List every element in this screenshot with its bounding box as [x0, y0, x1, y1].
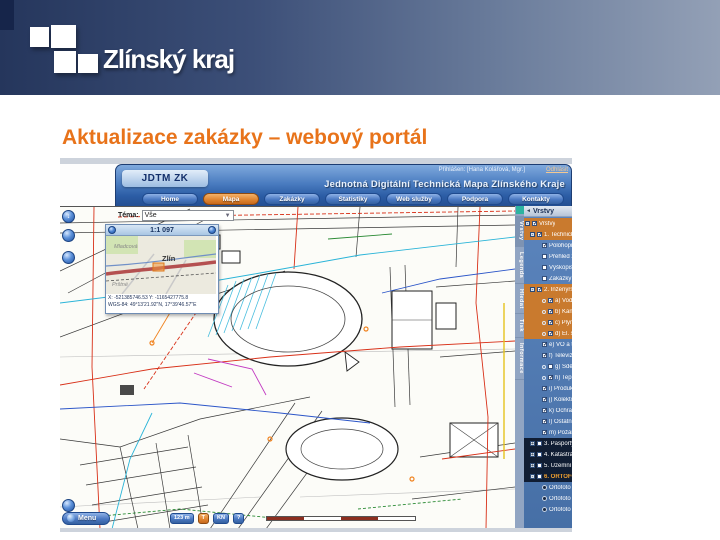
layer-label: 1. Technická mapa	[544, 232, 572, 238]
screenshot-bottom-strip	[60, 528, 572, 532]
panel-header: ◄ Vrstvy	[524, 206, 572, 217]
layer-tree-item[interactable]: ✓i) Produktovody	[524, 383, 572, 394]
expand-toggle-icon[interactable]: +	[530, 441, 535, 446]
layer-tree-item[interactable]: ✓e) VO a tech. služby	[524, 339, 572, 350]
layer-tree-item[interactable]: + 3. Pasporty obcí	[524, 438, 572, 449]
overview-info-button[interactable]	[108, 226, 116, 234]
logout-link[interactable]: Odhlásit	[546, 167, 568, 173]
layer-tree-item[interactable]: ✓m) Požární hydranty	[524, 427, 572, 438]
overview-header: 1:1 097	[106, 225, 218, 236]
layer-label: Ortofoto 2008 (WMS ZK)	[549, 485, 572, 491]
layer-checkbox[interactable]	[548, 364, 553, 369]
layer-checkbox[interactable]	[537, 452, 542, 457]
layer-label: 4. Katastrální mapa	[544, 452, 572, 458]
layer-checkbox[interactable]	[537, 463, 542, 468]
scale-bar	[266, 516, 416, 521]
portal-screenshot: JDTM ZK Přihlášen: [Hana Kolářová, Mgr.]…	[60, 158, 572, 532]
layer-checkbox[interactable]	[542, 254, 547, 259]
login-status: Přihlášen: [Hana Kolářová, Mgr.]	[439, 167, 525, 173]
layer-label: 2. Inženýrské sítě	[544, 287, 572, 293]
expand-toggle-icon[interactable]: -	[530, 287, 535, 292]
theme-value: Vše	[145, 212, 157, 219]
layer-tree-item[interactable]: - 6. ORTOFOTO	[524, 471, 572, 482]
layer-checkbox[interactable]: ✓	[542, 353, 547, 358]
layer-label: 3. Pasporty obcí	[544, 441, 572, 447]
panel-corner-icon	[516, 206, 524, 214]
coordinate-readout: X: -521385746.53 Y: -1165427775.8 WGS-84…	[106, 294, 218, 311]
coords-sjtsk: X: -521385746.53 Y: -1165427775.8	[108, 295, 216, 302]
layer-panel: VrstvyLegendaHledatTiskInformace ◄ Vrstv…	[515, 206, 572, 528]
panel-main: ◄ Vrstvy - ✓Vrstvy - ✓1. Technická mapa …	[524, 206, 572, 528]
layer-checkbox[interactable]	[537, 474, 542, 479]
layer-tree-item[interactable]: ✓d) El. silová vedení	[524, 328, 572, 339]
layer-label: Ortofoto 2014 (WMS ČÚZK)	[549, 507, 572, 513]
layer-checkbox[interactable]: ✓	[537, 287, 542, 292]
nav-button[interactable]: Zakázky	[264, 193, 320, 205]
menu-label: Menu	[78, 515, 96, 522]
help-button[interactable]: ?	[233, 513, 244, 524]
menu-button[interactable]: Menu	[62, 512, 110, 525]
layer-label: f) Televizní kabely	[549, 353, 572, 359]
minimap-label-city: Zlín	[162, 254, 176, 263]
map-bottom-toolbar: Menu 123 m T KN ?	[62, 511, 512, 525]
expand-toggle-icon[interactable]: -	[530, 232, 535, 237]
portal-header: JDTM ZK Přihlášen: [Hana Kolářová, Mgr.]…	[115, 164, 572, 206]
logo-text: Zlínský kraj	[103, 44, 234, 75]
slide-header-band: Zlínský kraj	[0, 0, 720, 95]
panel-tab[interactable]: Hledat	[515, 284, 524, 315]
layer-checkbox[interactable]: ✓	[542, 419, 547, 424]
menu-ball-icon	[67, 514, 75, 522]
layer-label: Ortofoto 2012 (WMS)	[549, 496, 572, 502]
layer-tree-item[interactable]: ✓Polohopis	[524, 240, 572, 251]
layer-radio[interactable]	[542, 485, 547, 490]
layer-label: Výškopis	[549, 265, 572, 271]
layer-tree-item[interactable]: Ortofoto 2008 (WMS ZK)	[524, 482, 572, 493]
overview-minimap[interactable]: Mladcová Prštné Zlín	[106, 236, 218, 294]
chevron-down-icon: ▼	[225, 213, 231, 219]
layer-label: Přehled zakázek	[549, 254, 572, 260]
subnode-icon[interactable]	[542, 332, 546, 336]
panel-tab[interactable]: Informace	[515, 338, 524, 380]
layer-checkbox[interactable]: ✓	[537, 232, 542, 237]
logo-square-icon	[51, 25, 76, 48]
layer-label: g) Sdělovací vedení	[555, 364, 572, 370]
panel-tab[interactable]: Vrstvy	[515, 216, 524, 247]
layer-checkbox[interactable]: ✓	[548, 298, 553, 303]
expand-toggle-icon[interactable]: -	[530, 474, 535, 479]
layer-tree: - ✓Vrstvy - ✓1. Technická mapa ✓Polohopi…	[524, 217, 572, 528]
minimap-label-district-top: Mladcová	[114, 244, 138, 250]
layer-checkbox[interactable]	[542, 265, 547, 270]
coords-wgs84: WGS-84: 49°13'21.92"N, 17°39'46.57"E	[108, 302, 216, 309]
layer-tree-item[interactable]: - ✓Vrstvy	[524, 218, 572, 229]
map-scale-value: 1:1 097	[150, 227, 174, 234]
layer-label: Polohopis	[549, 243, 572, 249]
nav-button[interactable]: Web služby	[386, 193, 442, 205]
panel-tabstrip: VrstvyLegendaHledatTiskInformace	[515, 206, 524, 528]
layer-tree-item[interactable]: Zakázky v aktualizaci	[524, 273, 572, 284]
logo-corner-square	[0, 0, 14, 30]
panel-tab[interactable]: Tisk	[515, 314, 524, 338]
layer-tree-item[interactable]: ✓j) Kolektory	[524, 394, 572, 405]
layer-tree-item[interactable]: Ortofoto 2012 (WMS)	[524, 493, 572, 504]
layer-checkbox[interactable]	[542, 276, 547, 281]
collapse-panel-icon[interactable]: ◄	[526, 208, 531, 214]
layer-tree-item[interactable]: ✓h) Teplovody	[524, 372, 572, 383]
theme-label: Téma:	[118, 212, 139, 219]
layer-checkbox[interactable]: ✓	[542, 342, 547, 347]
layer-tree-item[interactable]: - ✓2. Inženýrské sítě	[524, 284, 572, 295]
layer-checkbox[interactable]: ✓	[532, 221, 537, 226]
expand-toggle-icon[interactable]: +	[530, 463, 535, 468]
text-tool-button[interactable]: T	[198, 513, 209, 524]
subnode-icon[interactable]	[542, 299, 546, 303]
layer-checkbox[interactable]: ✓	[548, 309, 553, 314]
theme-select[interactable]: Vše ▼	[142, 210, 234, 221]
pan-tool-button[interactable]	[62, 229, 75, 242]
page-title: Aktualizace zakázky – webový portál	[62, 126, 427, 150]
overview-close-button[interactable]	[208, 226, 216, 234]
previous-view-button[interactable]: ↓	[62, 210, 75, 223]
portal-title: Jednotná Digitální Technická Mapa Zlínsk…	[324, 179, 565, 190]
layer-tree-item[interactable]: ✓f) Televizní kabely	[524, 350, 572, 361]
map-viewport[interactable]: Téma: Vše ▼ ↓ 1:1 097	[60, 206, 515, 528]
layer-checkbox[interactable]: ✓	[542, 430, 547, 435]
layer-radio[interactable]	[542, 507, 547, 512]
layer-label: i) Produktovody	[549, 386, 572, 392]
nav-button[interactable]: Statistiky	[325, 193, 381, 205]
logo-square-icon	[54, 51, 76, 73]
layer-label: a) Vodovody	[555, 298, 572, 304]
layer-tree-item[interactable]: ✓a) Vodovody	[524, 295, 572, 306]
layer-label: Vrstvy	[539, 221, 555, 227]
layer-radio[interactable]	[542, 496, 547, 501]
layer-checkbox[interactable]: ✓	[548, 375, 553, 380]
expand-toggle-icon[interactable]: -	[525, 221, 530, 226]
subnode-icon[interactable]	[542, 321, 546, 325]
layer-label: k) Ochranná pásma	[549, 408, 572, 414]
layer-checkbox[interactable]: ✓	[542, 408, 547, 413]
layer-label: 6. ORTOFOTO	[544, 474, 572, 480]
subnode-icon[interactable]	[542, 376, 546, 380]
layer-checkbox[interactable]: ✓	[548, 320, 553, 325]
layer-label: Zakázky v aktualizaci	[549, 276, 572, 282]
layer-tree-item[interactable]: ✓l) Ostatní vedení	[524, 416, 572, 427]
nav-button[interactable]: Mapa	[203, 193, 259, 205]
layer-tree-item[interactable]: - ✓1. Technická mapa	[524, 229, 572, 240]
minimap-label-district-bottom: Prštné	[112, 282, 128, 288]
layer-tree-item[interactable]: Výškopis	[524, 262, 572, 273]
layer-tree-item[interactable]: Přehled zakázek	[524, 251, 572, 262]
panel-tab[interactable]: Legenda	[515, 247, 524, 284]
layer-label: j) Kolektory	[549, 397, 572, 403]
nav-button[interactable]: Kontakty	[508, 193, 564, 205]
layer-tree-item[interactable]: ✓c) Plynovody	[524, 317, 572, 328]
layer-tree-item[interactable]: g) Sdělovací vedení	[524, 361, 572, 372]
layer-tree-item[interactable]: Ortofoto 2014 (WMS ČÚZK)	[524, 504, 572, 515]
layer-checkbox[interactable]	[537, 441, 542, 446]
layer-tree-item[interactable]: ✓b) Kanalizace	[524, 306, 572, 317]
cadastre-tool-button[interactable]: KN	[213, 513, 229, 524]
nav-button[interactable]: Podpora	[447, 193, 503, 205]
layer-checkbox[interactable]: ✓	[542, 397, 547, 402]
portal-body: Téma: Vše ▼ ↓ 1:1 097	[60, 206, 572, 528]
overview-map-box: 1:1 097 Mladcová Pr	[105, 224, 219, 314]
layer-checkbox[interactable]: ✓	[548, 331, 553, 336]
layer-tree-item[interactable]: ✓k) Ochranná pásma	[524, 405, 572, 416]
expand-toggle-icon[interactable]: +	[530, 452, 535, 457]
theme-bar: Téma: Vše ▼	[118, 210, 234, 221]
portal-nav: HomeMapaZakázkyStatistikyWeb službyPodpo…	[142, 193, 564, 205]
layer-checkbox[interactable]: ✓	[542, 386, 547, 391]
layer-tree-item[interactable]: + 4. Katastrální mapa	[524, 449, 572, 460]
layer-label: e) VO a tech. služby	[549, 342, 572, 348]
zoom-tool-button[interactable]	[62, 251, 75, 264]
layer-label: h) Teplovody	[555, 375, 572, 381]
layer-tree-item[interactable]: + 5. Územní plány	[524, 460, 572, 471]
coordinate-tool-button[interactable]: 123 m	[170, 513, 194, 524]
nav-button[interactable]: Home	[142, 193, 198, 205]
layer-label: 5. Územní plány	[544, 463, 572, 469]
logo-square-icon	[30, 27, 49, 47]
layer-label: l) Ostatní vedení	[549, 419, 572, 425]
layer-label: d) El. silová vedení	[555, 331, 572, 337]
brand-tab[interactable]: JDTM ZK	[122, 170, 208, 187]
layer-label: m) Požární hydranty	[549, 430, 572, 436]
logo-square-icon	[78, 54, 98, 73]
layer-label: b) Kanalizace	[555, 309, 572, 315]
panel-title: Vrstvy	[533, 208, 554, 215]
subnode-icon[interactable]	[542, 365, 546, 369]
subnode-icon[interactable]	[542, 310, 546, 314]
layer-checkbox[interactable]: ✓	[542, 243, 547, 248]
layer-label: c) Plynovody	[555, 320, 572, 326]
